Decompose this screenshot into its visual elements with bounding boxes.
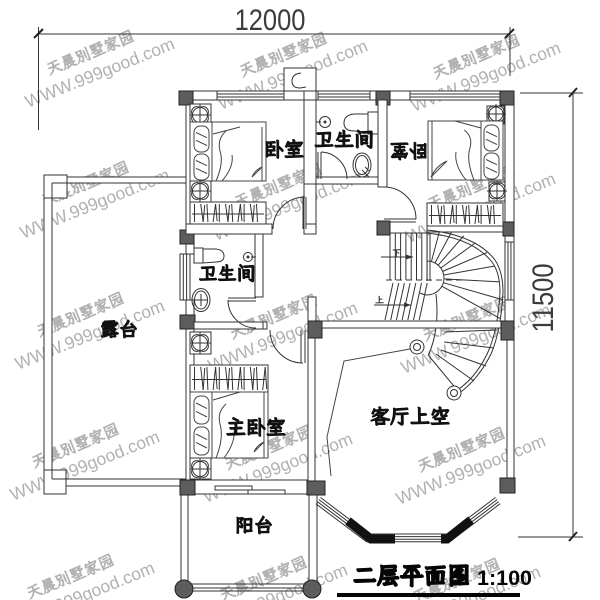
svg-text:1:100: 1:100	[477, 566, 532, 590]
svg-text:12000: 12000	[235, 3, 306, 36]
svg-text:11500: 11500	[526, 264, 559, 333]
